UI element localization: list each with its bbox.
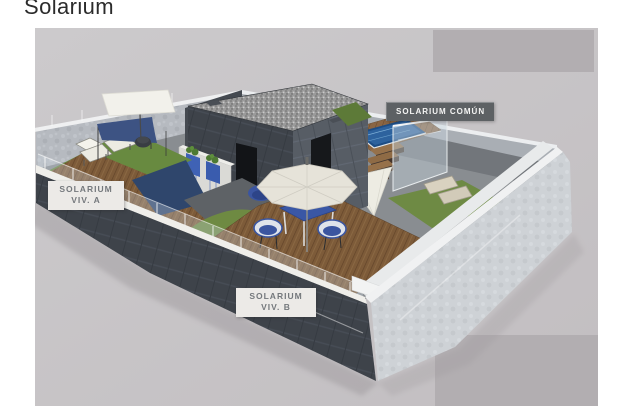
render-area <box>35 28 598 406</box>
page-title: Solarium <box>24 0 114 20</box>
label-solarium-comun: SOLARIUM COMÚN <box>386 102 494 121</box>
label-line: SOLARIUM <box>242 291 310 302</box>
label-line: VIV. A <box>54 195 118 206</box>
gray-rectangle-bottom-right <box>435 335 598 406</box>
gray-rectangle-top-right <box>433 30 594 72</box>
label-solarium-viv-b: SOLARIUM VIV. B <box>236 288 316 317</box>
label-line: SOLARIUM <box>54 184 118 195</box>
label-solarium-viv-a: SOLARIUM VIV. A <box>48 181 124 210</box>
solarium-3d-render <box>35 28 598 406</box>
label-line: VIV. B <box>242 302 310 313</box>
page: Solarium <box>0 0 620 406</box>
